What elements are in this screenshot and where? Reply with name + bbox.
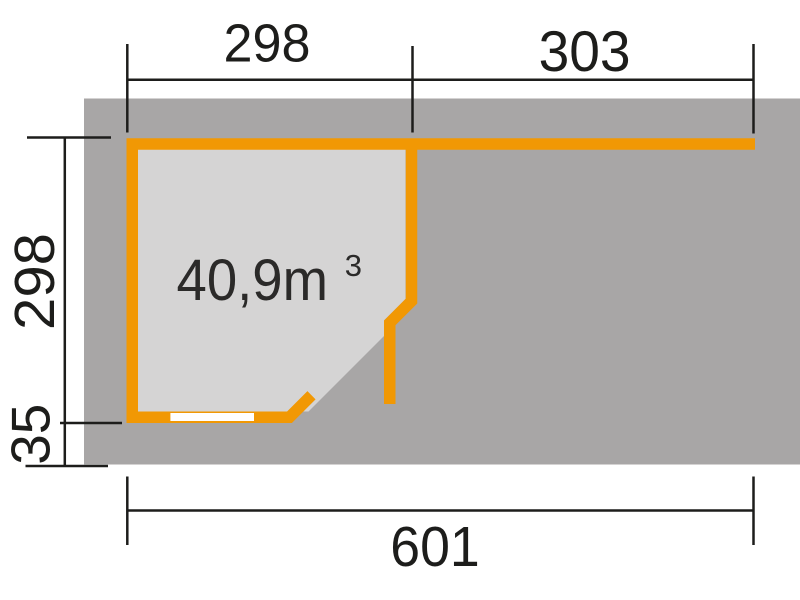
svg-text:303: 303 bbox=[539, 20, 631, 84]
svg-text:40,9m: 40,9m bbox=[177, 248, 329, 313]
svg-text:298: 298 bbox=[3, 233, 67, 330]
svg-text:601: 601 bbox=[390, 515, 480, 578]
svg-text:3: 3 bbox=[345, 248, 362, 283]
svg-text:35: 35 bbox=[0, 404, 61, 465]
svg-text:298: 298 bbox=[224, 14, 311, 74]
